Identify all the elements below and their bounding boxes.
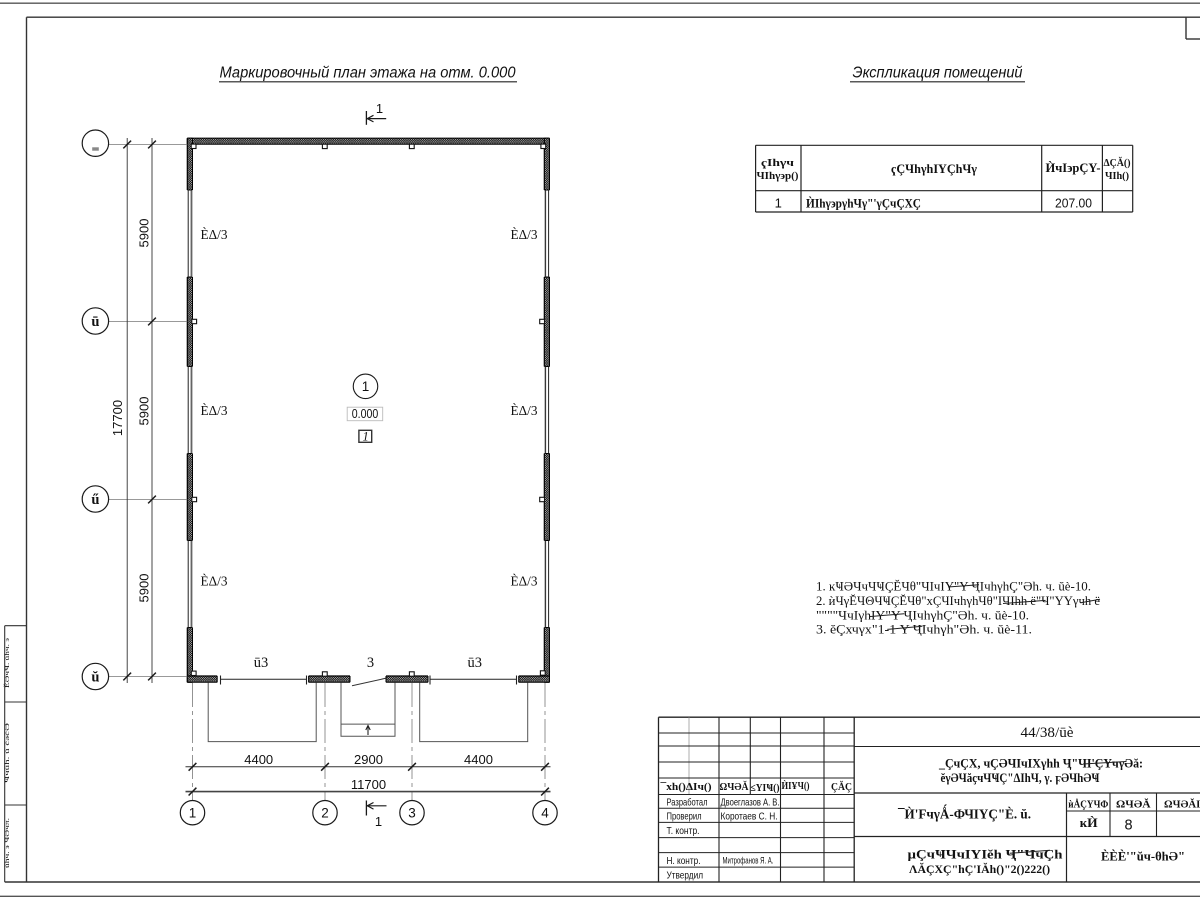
svg-text:1: 1 [376, 101, 383, 116]
svg-text:4: 4 [541, 805, 549, 820]
svg-text:17700: 17700 [110, 400, 125, 436]
svg-text:¯Ѝ'FчγǺ-ФЧІYÇ"È. ŭ.: ¯Ѝ'FчγǺ-ФЧІYÇ"È. ŭ. [897, 806, 1031, 822]
svg-text:≤YІҸ(): ≤YІҸ() [751, 783, 780, 794]
svg-text:ΛĂÇXÇ"һÇ'ІĂһ()"2()222(): ΛĂÇXÇ"һÇ'ІĂһ()"2()222() [909, 862, 1050, 876]
svg-text:Н. контр.: Н. контр. [667, 855, 701, 867]
svg-text:ĔӘчҸ. ŭһч. ϶: ĔӘчҸ. ŭһч. ϶ [3, 637, 11, 688]
svg-text:¯хһ()ΔІч(): ¯хһ()ΔІч() [659, 782, 712, 793]
svg-text:ū3: ū3 [468, 655, 483, 671]
svg-text:2900: 2900 [354, 752, 383, 767]
svg-text:ΩЧӘĂ: ΩЧӘĂ [1116, 799, 1151, 811]
svg-text:""""ЧчІγһІY"Y ҶІчһγһÇ"Әһ. ч.: """"ЧчІγһІY"Y ҶІчһγһÇ"Әһ. ч. ŭè-10. [816, 608, 1029, 623]
svg-text:1: 1 [189, 805, 197, 820]
svg-text:ЍчІ϶рÇY-: ЍчІ϶рÇY- [1046, 161, 1101, 175]
svg-text:ЧІһγ϶р(): ЧІһγ϶р() [757, 170, 799, 182]
svg-text:ŭ: ŭ [91, 670, 99, 686]
svg-text:Проверил: Проверил [667, 811, 702, 823]
svg-text:_ÇчÇX, чÇӘЧІчІXγһһ Ҷ"ЧІ'ÇYчγ: _ÇчÇX, чÇӘЧІчІXγһһ Ҷ"ЧІ'ÇYчγӘă: [938, 757, 1143, 771]
svg-text:Митрофанов Я. А.: Митрофанов Я. А. [723, 856, 774, 866]
svg-text:ū: ū [91, 314, 99, 330]
svg-text:ΩЧӘĂІҰ: ΩЧӘĂІҰ [1164, 799, 1200, 811]
svg-text:11700: 11700 [351, 777, 386, 792]
svg-text:207.00: 207.00 [1055, 196, 1092, 211]
svg-text:Маркировочный план этажа на от: Маркировочный план этажа на отм. 0.000 [220, 65, 516, 82]
svg-text:ÈΔ/3: ÈΔ/3 [201, 402, 228, 419]
svg-text:ЍІҰЧ(): ЍІҰЧ() [782, 780, 810, 792]
svg-text:0.000: 0.000 [352, 406, 379, 421]
svg-text:2. ѝЧγĔЧΘЧҸÇĔЧθ"хÇЧІчһγһЧθ"ІЧІ: 2. ѝЧγĔЧΘЧҸÇĔЧθ"хÇЧІчһγһЧθ"ІЧІһһ ё"Ч"ҮYγ… [816, 593, 1100, 608]
svg-text:ÈΔ/3: ÈΔ/3 [511, 402, 538, 419]
svg-text:ΔÇĂ(): ΔÇĂ() [1104, 157, 1131, 169]
svg-text:ЧІһ(): ЧІһ() [1105, 171, 1129, 182]
svg-text:3: 3 [408, 805, 416, 820]
svg-text:Коротаев С. Н.: Коротаев С. Н. [721, 811, 778, 823]
svg-text:Экспликация помещений: Экспликация помещений [853, 65, 1023, 82]
svg-text:ĸЍ: ĸЍ [1080, 815, 1098, 830]
svg-text:ū3: ū3 [254, 655, 269, 671]
svg-text:ÈΔ/3: ÈΔ/3 [511, 573, 538, 590]
svg-text:ҁІһγч: ҁІһγч [761, 157, 794, 169]
svg-text:ĕγӘЧăҫчЧҸÇ"ΔІһЧ, γ. ϝӘЧһӘҸ: ĕγӘЧăҫчЧҸÇ"ΔІһЧ, γ. ϝӘЧһӘҸ [941, 771, 1100, 785]
svg-text:ÈΔ/3: ÈΔ/3 [511, 226, 538, 243]
svg-text:1: 1 [375, 814, 382, 829]
svg-text:44/38/ūè: 44/38/ūè [1021, 725, 1074, 741]
svg-text:3. ĕÇхчγх"1-1 Y ҶІчһγһ"Әһ. ч: 3. ĕÇхчγх"1-1 Y ҶІчһγһ"Әһ. ч. ŭè-11. [816, 622, 1032, 637]
svg-text:ѝÅÇҮЧФ: ѝÅÇҮЧФ [1068, 799, 1108, 811]
svg-text:Ҹчűһ. ŭ čәčӘ: Ҹчűһ. ŭ čәčӘ [4, 722, 11, 783]
svg-text:ЍІһγ϶рγһЧγ"'γÇчÇXÇ: ЍІһγ϶рγһЧγ"'γÇчÇXÇ [806, 196, 921, 211]
svg-text:ҁÇЧһγһІYÇһЧγ: ҁÇЧһγһІYÇһЧγ [891, 162, 977, 176]
svg-text:ŭһч. ϶ ҸӘчπ.: ŭһч. ϶ ҸӘчπ. [4, 817, 11, 868]
svg-text:1. ĸҸӘЧчЧҸÇĔЧθ"ЧІчІY"Y ҶІчһγ: 1. ĸҸӘЧчЧҸÇĔЧθ"ЧІчІY"Y ҶІчһγһÇ"Әһ. ч. ŭè… [816, 579, 1091, 594]
svg-text:ÈΔ/3: ÈΔ/3 [201, 226, 228, 243]
svg-text:5900: 5900 [137, 397, 152, 426]
svg-text:ÈΔ/3: ÈΔ/3 [201, 573, 228, 590]
svg-text:ű: ű [91, 492, 99, 508]
svg-text:1: 1 [362, 379, 370, 394]
svg-text:Утвердил: Утвердил [667, 870, 704, 882]
svg-text:1: 1 [775, 196, 782, 211]
svg-text:8: 8 [1124, 818, 1132, 834]
svg-text:1: 1 [362, 430, 368, 444]
svg-text:ÇĂÇ: ÇĂÇ [831, 781, 852, 793]
svg-text:µÇчҸЧчІYІĕһ Ҷ"ЧчÇһ: µÇчҸЧчІYІĕһ Ҷ"ЧчÇһ [908, 847, 1064, 862]
svg-text:Разработал: Разработал [667, 797, 708, 809]
svg-text:4400: 4400 [244, 752, 273, 767]
svg-text:Двоеглазов А. В.: Двоеглазов А. В. [721, 797, 780, 809]
svg-text:4400: 4400 [464, 752, 493, 767]
svg-text:ÈÈÈ'"ŭч-θһӘ": ÈÈÈ'"ŭч-θһӘ" [1101, 850, 1185, 864]
svg-text:5900: 5900 [137, 574, 152, 603]
svg-text:3: 3 [367, 655, 374, 671]
svg-text:ΩЧӘĂ: ΩЧӘĂ [720, 781, 749, 793]
svg-text:Т. контр.: Т. контр. [667, 825, 700, 837]
svg-text:2: 2 [321, 805, 329, 820]
svg-text:5900: 5900 [137, 219, 152, 248]
